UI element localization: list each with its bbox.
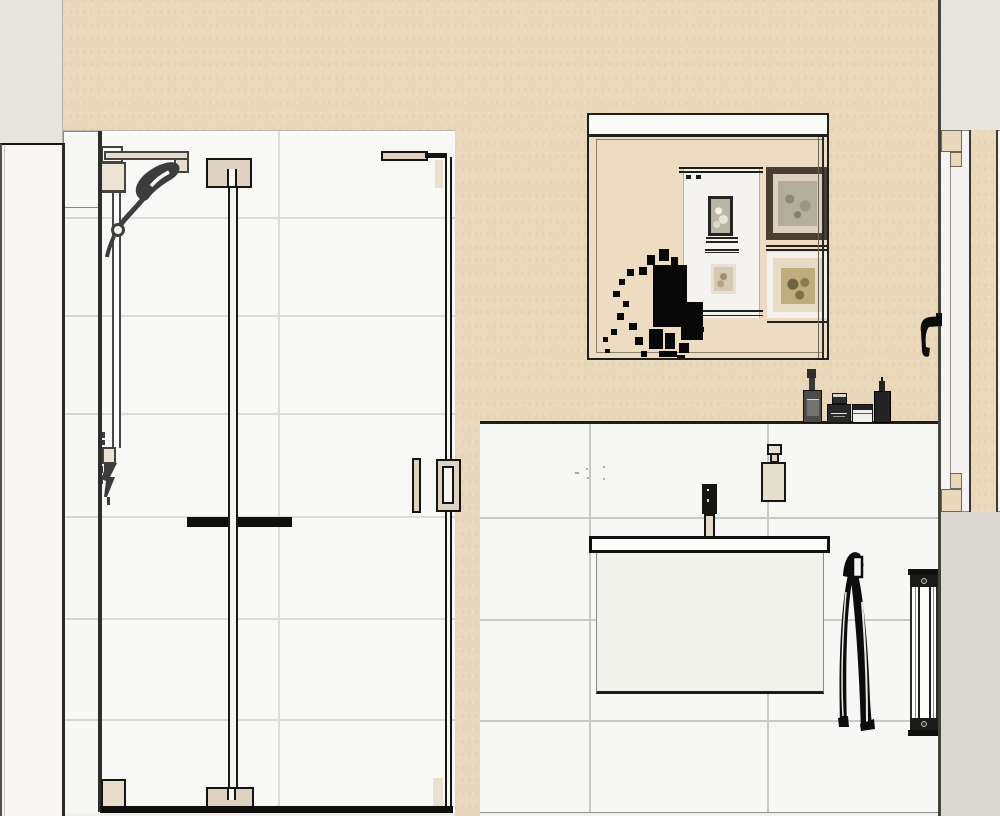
right-door-handle [0,0,1000,816]
bathroom-render [0,0,1000,816]
left-door-panel [0,143,65,816]
left-door-inner-line [4,145,5,816]
